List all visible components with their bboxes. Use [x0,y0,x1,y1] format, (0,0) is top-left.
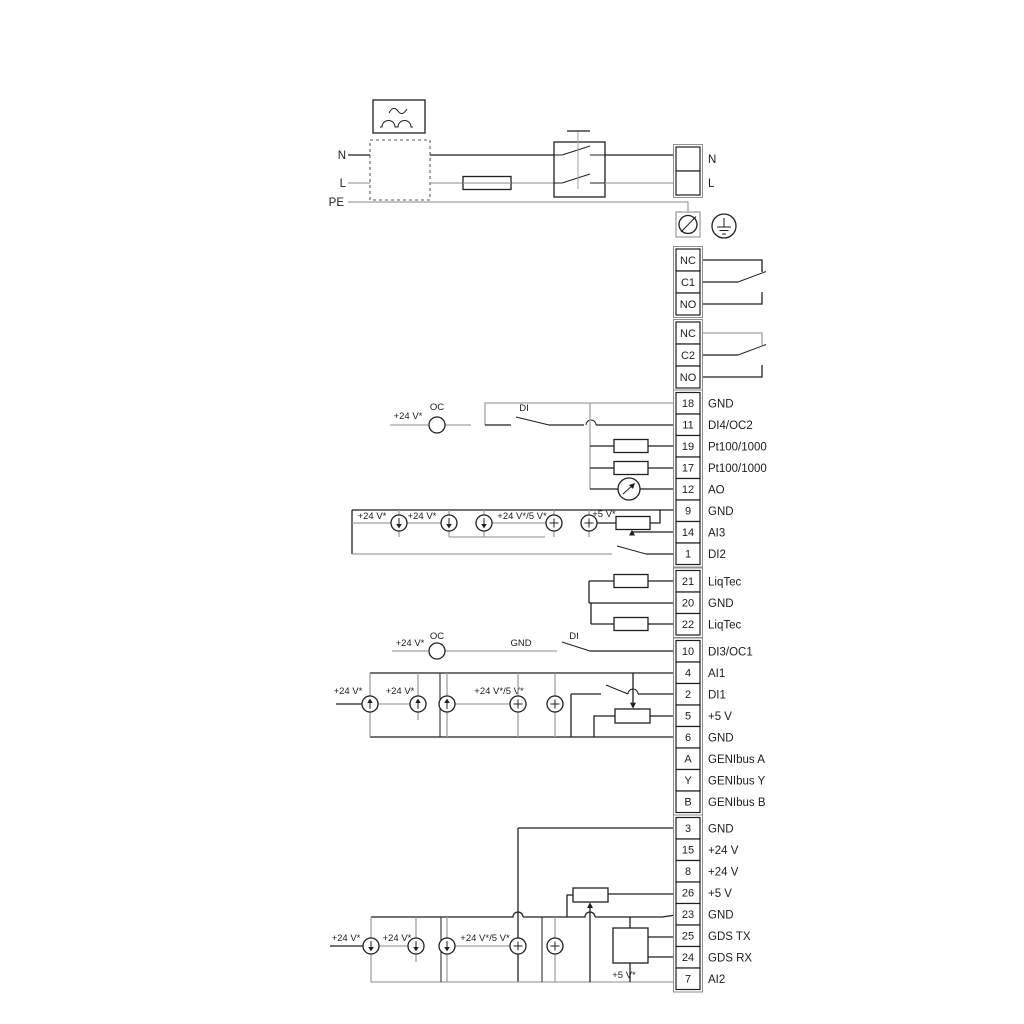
current-source-plus-icon [547,696,563,712]
terminal-label: +24 V [708,845,739,857]
pe-screw-terminal-icon [676,212,700,237]
ac-source-icon [373,100,425,133]
current-source-down-icon [408,938,424,954]
terminal-number: 14 [682,527,694,539]
earth-icon [712,214,736,238]
di4-switch-symbol [516,417,549,425]
terminal-label: GND [708,598,734,610]
open-collector-icon [429,417,445,433]
current-source-down-icon [391,515,407,531]
terminal-number: 11 [682,420,693,432]
terminal-number: 19 [682,441,694,453]
current-source-up-icon [439,696,455,712]
terminal-number: 5 [685,711,691,723]
current-source-up-icon [410,696,426,712]
current-source-plus-icon [510,696,526,712]
relay1-terminal-block: NCC1NO [674,247,703,318]
terminal-cell [676,171,700,195]
terminal-label: GDS RX [708,952,752,964]
terminal-label: AI1 [708,668,725,680]
terminal-label: N [708,154,716,166]
relay2-contact [700,333,766,377]
current-source-down-icon [363,938,379,954]
terminal-label: L [708,178,715,190]
plus24v-label: +24 V* [334,686,363,697]
terminal-label: GND [708,398,734,410]
pt100-resistor-symbol [590,462,676,475]
terminal-number: 10 [682,646,694,658]
ai2-gds-section: +24 V* +24 V* +24 V*/5 V* +5 V* [330,828,676,982]
plus24v-label: +24 V* [394,411,423,422]
terminal-label: +5 V [708,711,732,723]
liqtec-sensor-symbol [591,603,676,631]
main-switch-symbol [554,131,605,197]
di3-switch-symbol [562,642,590,651]
relay-terminal-label: NC [680,255,696,267]
terminal-number: 21 [682,576,694,588]
di-label: DI [519,403,529,414]
relay2-terminal-block: NCC2NO [674,320,703,391]
terminal-number: 6 [685,732,691,744]
terminal-label: GND [708,506,734,518]
terminal-number: 24 [682,952,694,964]
plus24v-label: +24 V* [396,638,425,649]
current-source-plus-icon [546,515,562,531]
current-source-up-icon [362,696,378,712]
terminal-number: A [684,754,692,766]
terminal-label: LiqTec [708,576,741,588]
terminal-number: 12 [682,484,694,496]
terminal-number: 15 [682,845,694,857]
terminal-label: DI3/OC1 [708,646,753,658]
terminal-number: 1 [685,549,691,561]
di2-switch-symbol [617,546,646,554]
terminal-label: GENIbus A [708,754,765,766]
terminal-number: 9 [685,506,691,518]
current-source-plus-icon [510,938,526,954]
terminal-label: GND [708,823,734,835]
terminal-number: 7 [685,974,691,986]
terminal-number: 17 [682,463,694,475]
plus24v-label: +24 V* [386,686,415,697]
relay-terminal-label: C2 [681,350,695,362]
terminal-label: +5 V [708,888,732,900]
terminal-cell [676,147,700,171]
terminal-number: 2 [685,689,691,701]
ao-meter-icon [590,478,676,500]
plus5v-label: +5 V* [612,970,636,981]
di1-switch-symbol [606,685,628,694]
open-collector-icon [429,643,445,659]
pe-label-left: PE [329,197,345,209]
n-label-left: N [338,150,346,162]
io1-terminal-block: 18GND11DI4/OC219Pt100/100017Pt100/100012… [674,390,767,567]
terminal-label: GND [708,909,734,921]
liqtec-sensor-symbol [589,575,676,604]
l-label-left: L [340,178,347,190]
terminal-label: GENIbus B [708,797,766,809]
relay-terminal-label: NO [680,299,697,311]
liqtec-terminal-block: 21LiqTec20GND22LiqTec [674,568,742,638]
terminal-number: 23 [682,909,694,921]
plus24v-label: +24 V* [383,933,412,944]
current-source-down-icon [476,515,492,531]
plus24v-5v-label: +24 V*/5 V* [474,686,524,697]
terminal-label: AO [708,484,725,496]
terminal-label: GENIbus Y [708,775,766,787]
terminal-number: B [684,797,691,809]
terminal-label: DI4/OC2 [708,420,753,432]
current-source-down-icon [441,515,457,531]
terminal-number: 26 [682,888,694,900]
relay-terminal-label: C1 [681,277,695,289]
gnd-label: GND [510,638,531,649]
terminal-label: +24 V [708,866,739,878]
terminal-number: 20 [682,598,694,610]
potentiometer-symbol [594,673,676,737]
relay-terminal-label: NO [680,372,697,384]
plus24v-label: +24 V* [332,933,361,944]
terminal-label: Pt100/1000 [708,463,767,475]
plus24v-label: +24 V* [358,511,387,522]
wiring-diagram: N L PE [0,0,1024,1024]
io3-terminal-block: 3GND15+24 V8+24 V26+5 V23GND25GDS TX24GD… [674,815,753,992]
terminal-label: DI1 [708,689,726,701]
terminal-number: 8 [685,866,691,878]
terminal-label: LiqTec [708,619,741,631]
oc-label: OC [430,631,444,642]
relay-terminal-label: NC [680,328,696,340]
terminal-label: Pt100/1000 [708,441,767,453]
oc-label: OC [430,402,444,413]
terminal-label: AI2 [708,974,725,986]
terminal-number: 4 [685,668,691,680]
terminal-label: GND [708,732,734,744]
line-filter-box [370,140,430,200]
liqtec-section [589,575,676,631]
terminal-number: 3 [685,823,691,835]
terminal-number: 22 [682,619,694,631]
terminal-number: 25 [682,931,694,943]
power-nl-terminal-block: NL [674,145,717,198]
terminal-number: 18 [682,398,694,410]
plus24v-5v-label: +24 V*/5 V* [497,511,547,522]
terminal-label: AI3 [708,527,725,539]
terminal-number: Y [684,775,692,787]
di4-section: +24 V* OC DI [390,402,676,500]
ai1-option-row: +24 V* +24 V* +24 V*/5 V* [334,673,676,737]
pt100-resistor-symbol [590,440,676,453]
current-source-plus-icon [547,938,563,954]
terminal-label: DI2 [708,549,726,561]
plus24v-label: +24 V* [408,511,437,522]
current-source-plus-icon [581,515,597,531]
di-label: DI [569,631,579,642]
relay1-contact [700,260,766,304]
current-source-down-icon [439,938,455,954]
io2-terminal-block: 10DI3/OC14AI12DI15+5 V6GNDAGENIbus AYGEN… [674,638,766,815]
plus24v-5v-label: +24 V*/5 V* [460,933,510,944]
terminal-label: GDS TX [708,931,751,943]
